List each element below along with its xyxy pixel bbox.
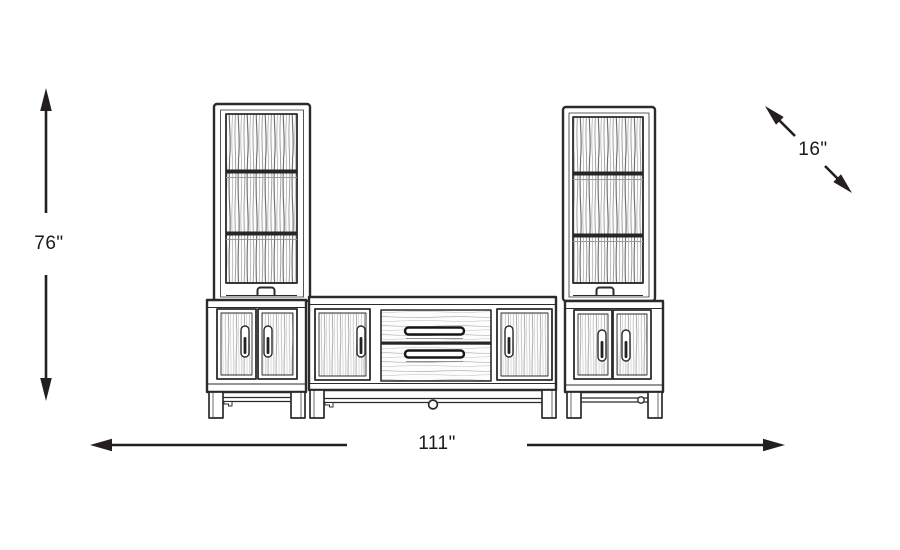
left-pier-open-shelving — [226, 114, 297, 283]
furniture-line-drawing — [207, 104, 663, 418]
door-handle — [357, 326, 365, 357]
door-handle — [622, 330, 630, 361]
right-base-cabinet — [565, 301, 663, 392]
drawer-handle — [405, 328, 464, 335]
stretcher-knob — [638, 397, 644, 403]
height-dimension-label: 76" — [22, 233, 76, 255]
left-base-cabinet — [207, 300, 306, 392]
depth-dimension-line-lower — [825, 166, 839, 180]
console-center-knob — [429, 400, 438, 409]
arrowhead-left-icon — [90, 439, 112, 452]
arrowhead-down-icon — [40, 378, 52, 401]
depth-dimension-label: 16" — [783, 139, 843, 161]
door-handle — [241, 326, 249, 357]
leg-bracket — [224, 402, 232, 407]
depth-dimension-line-upper — [779, 120, 795, 136]
right-pier-shelf — [573, 172, 643, 176]
drawer-bank — [381, 310, 491, 381]
base-legs — [209, 390, 662, 418]
media-console — [309, 297, 556, 390]
diagram-canvas: 76" 16" 111" — [0, 0, 900, 550]
door-handle — [598, 330, 606, 361]
right-pier — [563, 107, 655, 301]
left-pier — [214, 104, 310, 301]
width-dimension-label: 111" — [397, 433, 477, 455]
door-handle — [264, 326, 272, 357]
arrowhead-right-icon — [763, 439, 785, 452]
drawer-handle — [405, 351, 464, 358]
right-pier-open-shelving — [573, 117, 643, 283]
right-pier-pull-notch — [597, 288, 614, 296]
left-pier-pull-notch — [258, 288, 275, 296]
door-handle — [505, 326, 513, 357]
right-pier-shelf — [573, 234, 643, 238]
left-pier-shelf — [226, 232, 297, 236]
left-pier-shelf — [226, 170, 297, 174]
furniture-dimension-svg — [0, 0, 900, 550]
leg-bracket — [325, 403, 333, 408]
